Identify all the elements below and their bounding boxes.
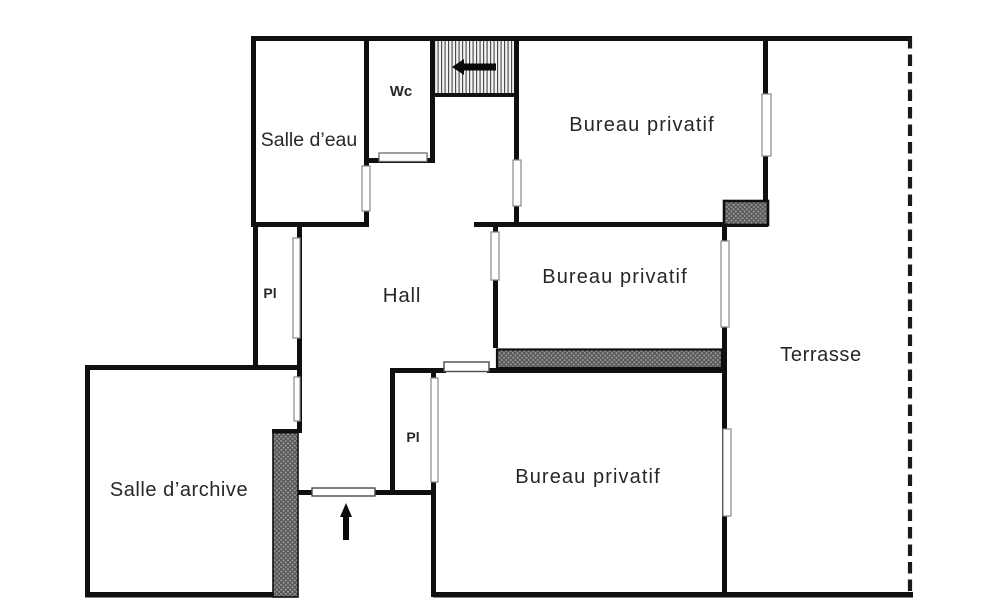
svg-text:Hall: Hall — [383, 284, 422, 307]
svg-text:Pl: Pl — [263, 285, 276, 301]
svg-text:Wc: Wc — [390, 83, 413, 100]
svg-text:Bureau privatif: Bureau privatif — [542, 266, 687, 288]
svg-text:Bureau privatif: Bureau privatif — [515, 466, 660, 488]
svg-text:Terrasse: Terrasse — [780, 344, 862, 366]
svg-text:Pl: Pl — [406, 429, 419, 445]
svg-text:Salle d’eau: Salle d’eau — [261, 129, 358, 151]
svg-text:Salle d’archive: Salle d’archive — [110, 479, 248, 501]
svg-text:Bureau privatif: Bureau privatif — [569, 114, 714, 136]
